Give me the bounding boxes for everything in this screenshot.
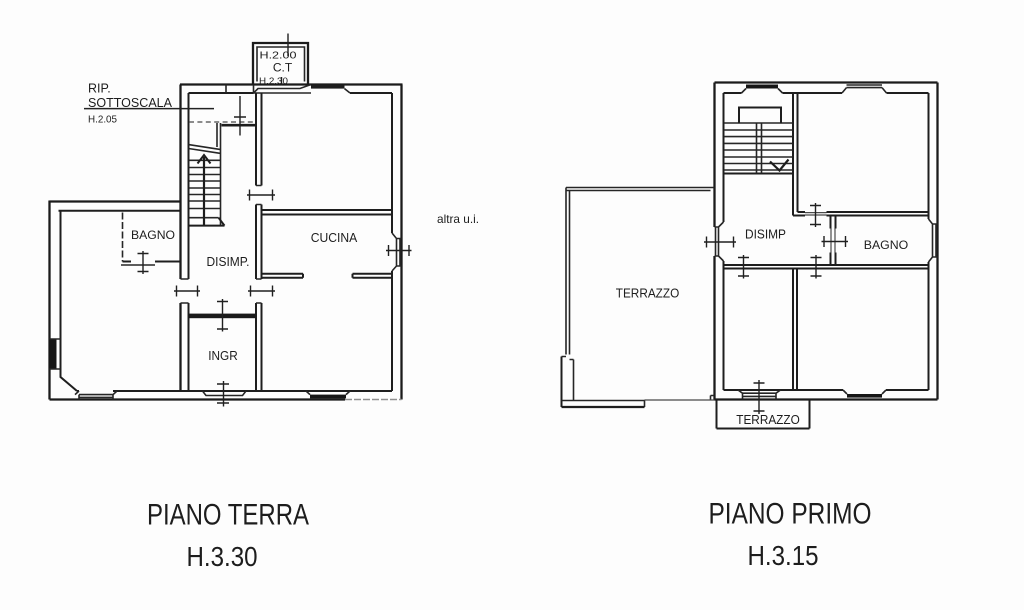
svg-text:TERRAZZO: TERRAZZO: [616, 286, 680, 301]
svg-text:RIP.: RIP.: [88, 82, 111, 96]
svg-text:H.3.15: H.3.15: [748, 540, 819, 571]
svg-text:DISIMP.: DISIMP.: [207, 255, 250, 269]
svg-text:H.2.05: H.2.05: [88, 114, 117, 126]
svg-text:DISIMP: DISIMP: [745, 228, 786, 242]
svg-text:CUCINA: CUCINA: [311, 230, 358, 245]
svg-text:PIANO PRIMO: PIANO PRIMO: [709, 498, 872, 531]
svg-text:H.2.30: H.2.30: [259, 76, 288, 87]
svg-text:TERRAZZO: TERRAZZO: [736, 413, 800, 427]
svg-text:BAGNO: BAGNO: [864, 238, 909, 252]
svg-text:BAGNO: BAGNO: [131, 228, 175, 242]
svg-text:INGR: INGR: [208, 348, 238, 363]
svg-text:PIANO TERRA: PIANO TERRA: [147, 499, 309, 532]
svg-text:altra u.i.: altra u.i.: [437, 212, 479, 226]
svg-text:H.3.30: H.3.30: [187, 541, 258, 572]
svg-text:C.T: C.T: [273, 61, 293, 75]
